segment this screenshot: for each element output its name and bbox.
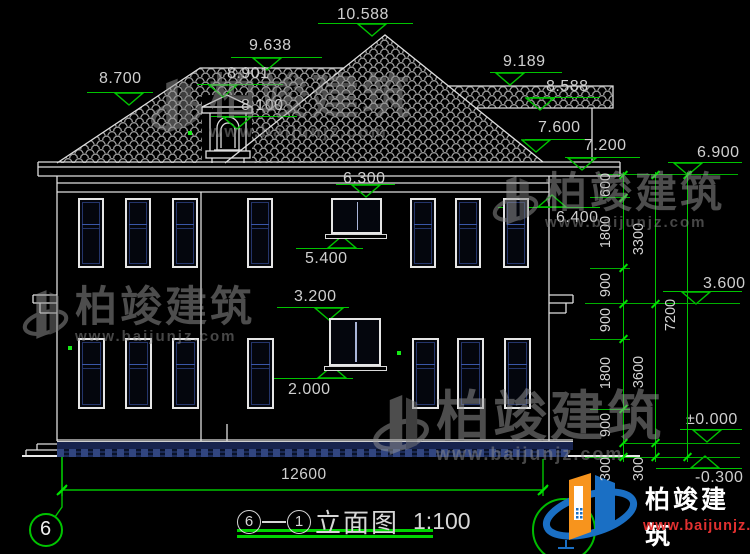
watermark-cn-text: 柏竣建筑 — [209, 74, 413, 122]
snap-dot — [397, 351, 401, 355]
window — [455, 198, 481, 268]
window-inner-frame — [129, 202, 147, 264]
level-label: 3.600 — [703, 275, 746, 293]
window-transom — [129, 364, 148, 369]
watermark-text-block: 柏竣建筑www.baijunjz.com — [436, 390, 664, 465]
window-transom — [416, 364, 435, 369]
watermark-url-text: www.baijunjz.com — [545, 214, 725, 231]
level-label: 8.700 — [99, 70, 142, 88]
watermark-url-text: www.baijunjz.com — [75, 328, 255, 345]
window-inner-frame — [414, 202, 432, 264]
watermark-text-block: 柏竣建筑www.baijunjz.com — [545, 172, 725, 231]
watermark-logo-icon — [372, 390, 430, 470]
window-transom — [129, 224, 147, 229]
small-window — [331, 198, 382, 234]
window-transom — [251, 224, 269, 229]
dimension-tick — [539, 485, 548, 494]
window — [125, 198, 151, 268]
window-mullion — [355, 322, 357, 362]
window-inner-frame — [82, 342, 101, 405]
window-transom — [414, 224, 432, 229]
window-transom — [459, 224, 477, 229]
watermark-cn-text: 柏竣建筑 — [436, 390, 664, 444]
window — [247, 198, 273, 268]
window-transom — [508, 364, 527, 369]
watermark-url-text: www.baijunjz.com — [209, 122, 413, 142]
level-label: 10.588 — [337, 6, 389, 24]
level-label: 9.189 — [503, 53, 546, 71]
window-transom — [461, 364, 480, 369]
level-label: 8.588 — [546, 78, 589, 96]
window-inner-frame — [459, 202, 477, 264]
level-marker-triangle — [114, 92, 144, 106]
level-marker-triangle — [525, 97, 555, 111]
watermark-text-block: 柏竣建筑www.baijunjz.com — [209, 74, 413, 142]
level-marker-triangle — [357, 23, 387, 37]
snap-dot — [68, 346, 72, 350]
watermark-url-text: www.baijunjz.com — [436, 444, 664, 465]
level-label: 5.400 — [305, 250, 348, 268]
level-label: 7.600 — [538, 119, 581, 137]
watermark-logo-icon — [492, 172, 539, 237]
dimension-tick — [58, 485, 67, 494]
watermark-logo-icon — [22, 286, 69, 351]
level-label: ±0.000 — [686, 411, 738, 429]
window-inner-frame — [251, 202, 269, 264]
window — [410, 198, 436, 268]
level-marker-triangle — [521, 139, 551, 153]
window-transom — [82, 364, 101, 369]
window-inner-frame — [176, 342, 195, 405]
window-transom — [251, 364, 270, 369]
window — [78, 198, 104, 268]
watermark: 柏竣建筑www.baijunjz.com — [492, 172, 725, 237]
level-label: 2.000 — [288, 381, 331, 399]
watermark-cn-text: 柏竣建筑 — [75, 286, 255, 328]
window-inner-frame — [129, 342, 148, 405]
window — [172, 198, 198, 268]
window-inner-frame — [176, 202, 194, 264]
level-label: 6.300 — [343, 170, 386, 188]
level-marker-triangle — [692, 429, 722, 443]
window-transom — [82, 224, 100, 229]
window-sill — [324, 366, 387, 371]
level-label: 3.200 — [294, 288, 337, 306]
window-transom — [176, 364, 195, 369]
dimension-label: 7200 — [663, 280, 679, 350]
level-label: 6.900 — [697, 144, 740, 162]
level-label: 9.638 — [249, 37, 292, 55]
watermark: 柏竣建筑www.baijunjz.com — [150, 74, 413, 147]
snap-dot — [188, 131, 192, 135]
watermark: 柏竣建筑www.baijunjz.com — [22, 286, 255, 351]
window-mullion — [357, 202, 359, 230]
watermark-cn-text: 柏竣建筑 — [545, 172, 725, 214]
small-window — [329, 318, 381, 366]
watermark-text-block: 柏竣建筑www.baijunjz.com — [75, 286, 255, 345]
level-marker-triangle — [495, 72, 525, 86]
window-inner-frame — [82, 202, 100, 264]
watermark-logo-icon — [150, 74, 203, 147]
elevation-drawing-canvas: 12600 6 61立面图1:100 柏竣建筑 www.baijunjz.com… — [0, 0, 750, 554]
level-label: -0.300 — [695, 469, 743, 487]
window-inner-frame — [251, 342, 270, 405]
window-sill — [325, 234, 387, 239]
window-transom — [176, 224, 194, 229]
watermark: 柏竣建筑www.baijunjz.com — [372, 390, 664, 470]
